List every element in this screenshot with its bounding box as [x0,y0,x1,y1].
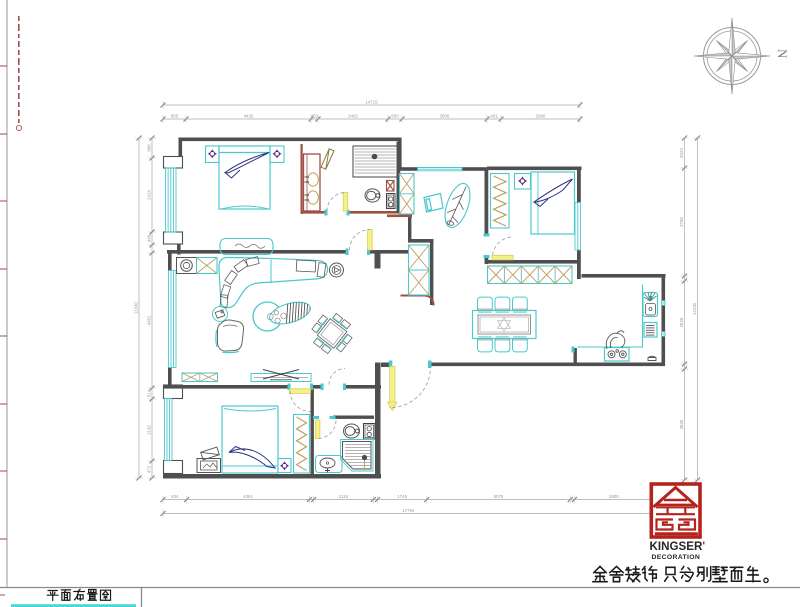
svg-text:2414: 2414 [147,190,152,200]
svg-text:3830: 3830 [679,419,684,429]
svg-text:2192: 2192 [147,425,152,435]
svg-text:N: N [775,49,790,59]
svg-text:DECORATION: DECORATION [652,554,701,561]
svg-text:2462: 2462 [348,114,358,119]
svg-text:800: 800 [171,114,179,119]
svg-text:2800: 2800 [609,494,619,499]
svg-text:17794: 17794 [402,508,415,513]
svg-text:472: 472 [147,465,152,473]
svg-text:3756: 3756 [679,217,684,227]
svg-text:14715: 14715 [365,100,378,105]
svg-text:2110: 2110 [339,494,349,499]
svg-text:4425: 4425 [244,114,254,119]
svg-text:5075: 5075 [494,494,504,499]
svg-text:445: 445 [147,234,152,242]
svg-text:680: 680 [147,144,152,152]
svg-text:4381: 4381 [147,315,152,325]
svg-text:3006: 3006 [440,114,450,119]
svg-text:11930: 11930 [134,302,139,314]
svg-text:2828: 2828 [679,317,684,327]
svg-text:1745: 1745 [397,494,407,499]
svg-text:251: 251 [311,114,319,119]
svg-text:12130: 12130 [692,302,697,315]
svg-text:2880: 2880 [536,114,546,119]
svg-text:500: 500 [391,114,399,119]
svg-text:834: 834 [171,494,179,499]
svg-text:KINGSER': KINGSER' [650,540,706,553]
svg-text:4351: 4351 [243,494,253,499]
svg-text:514: 514 [147,389,152,397]
svg-text:491: 491 [490,114,498,119]
svg-text:5323: 5323 [679,148,684,158]
